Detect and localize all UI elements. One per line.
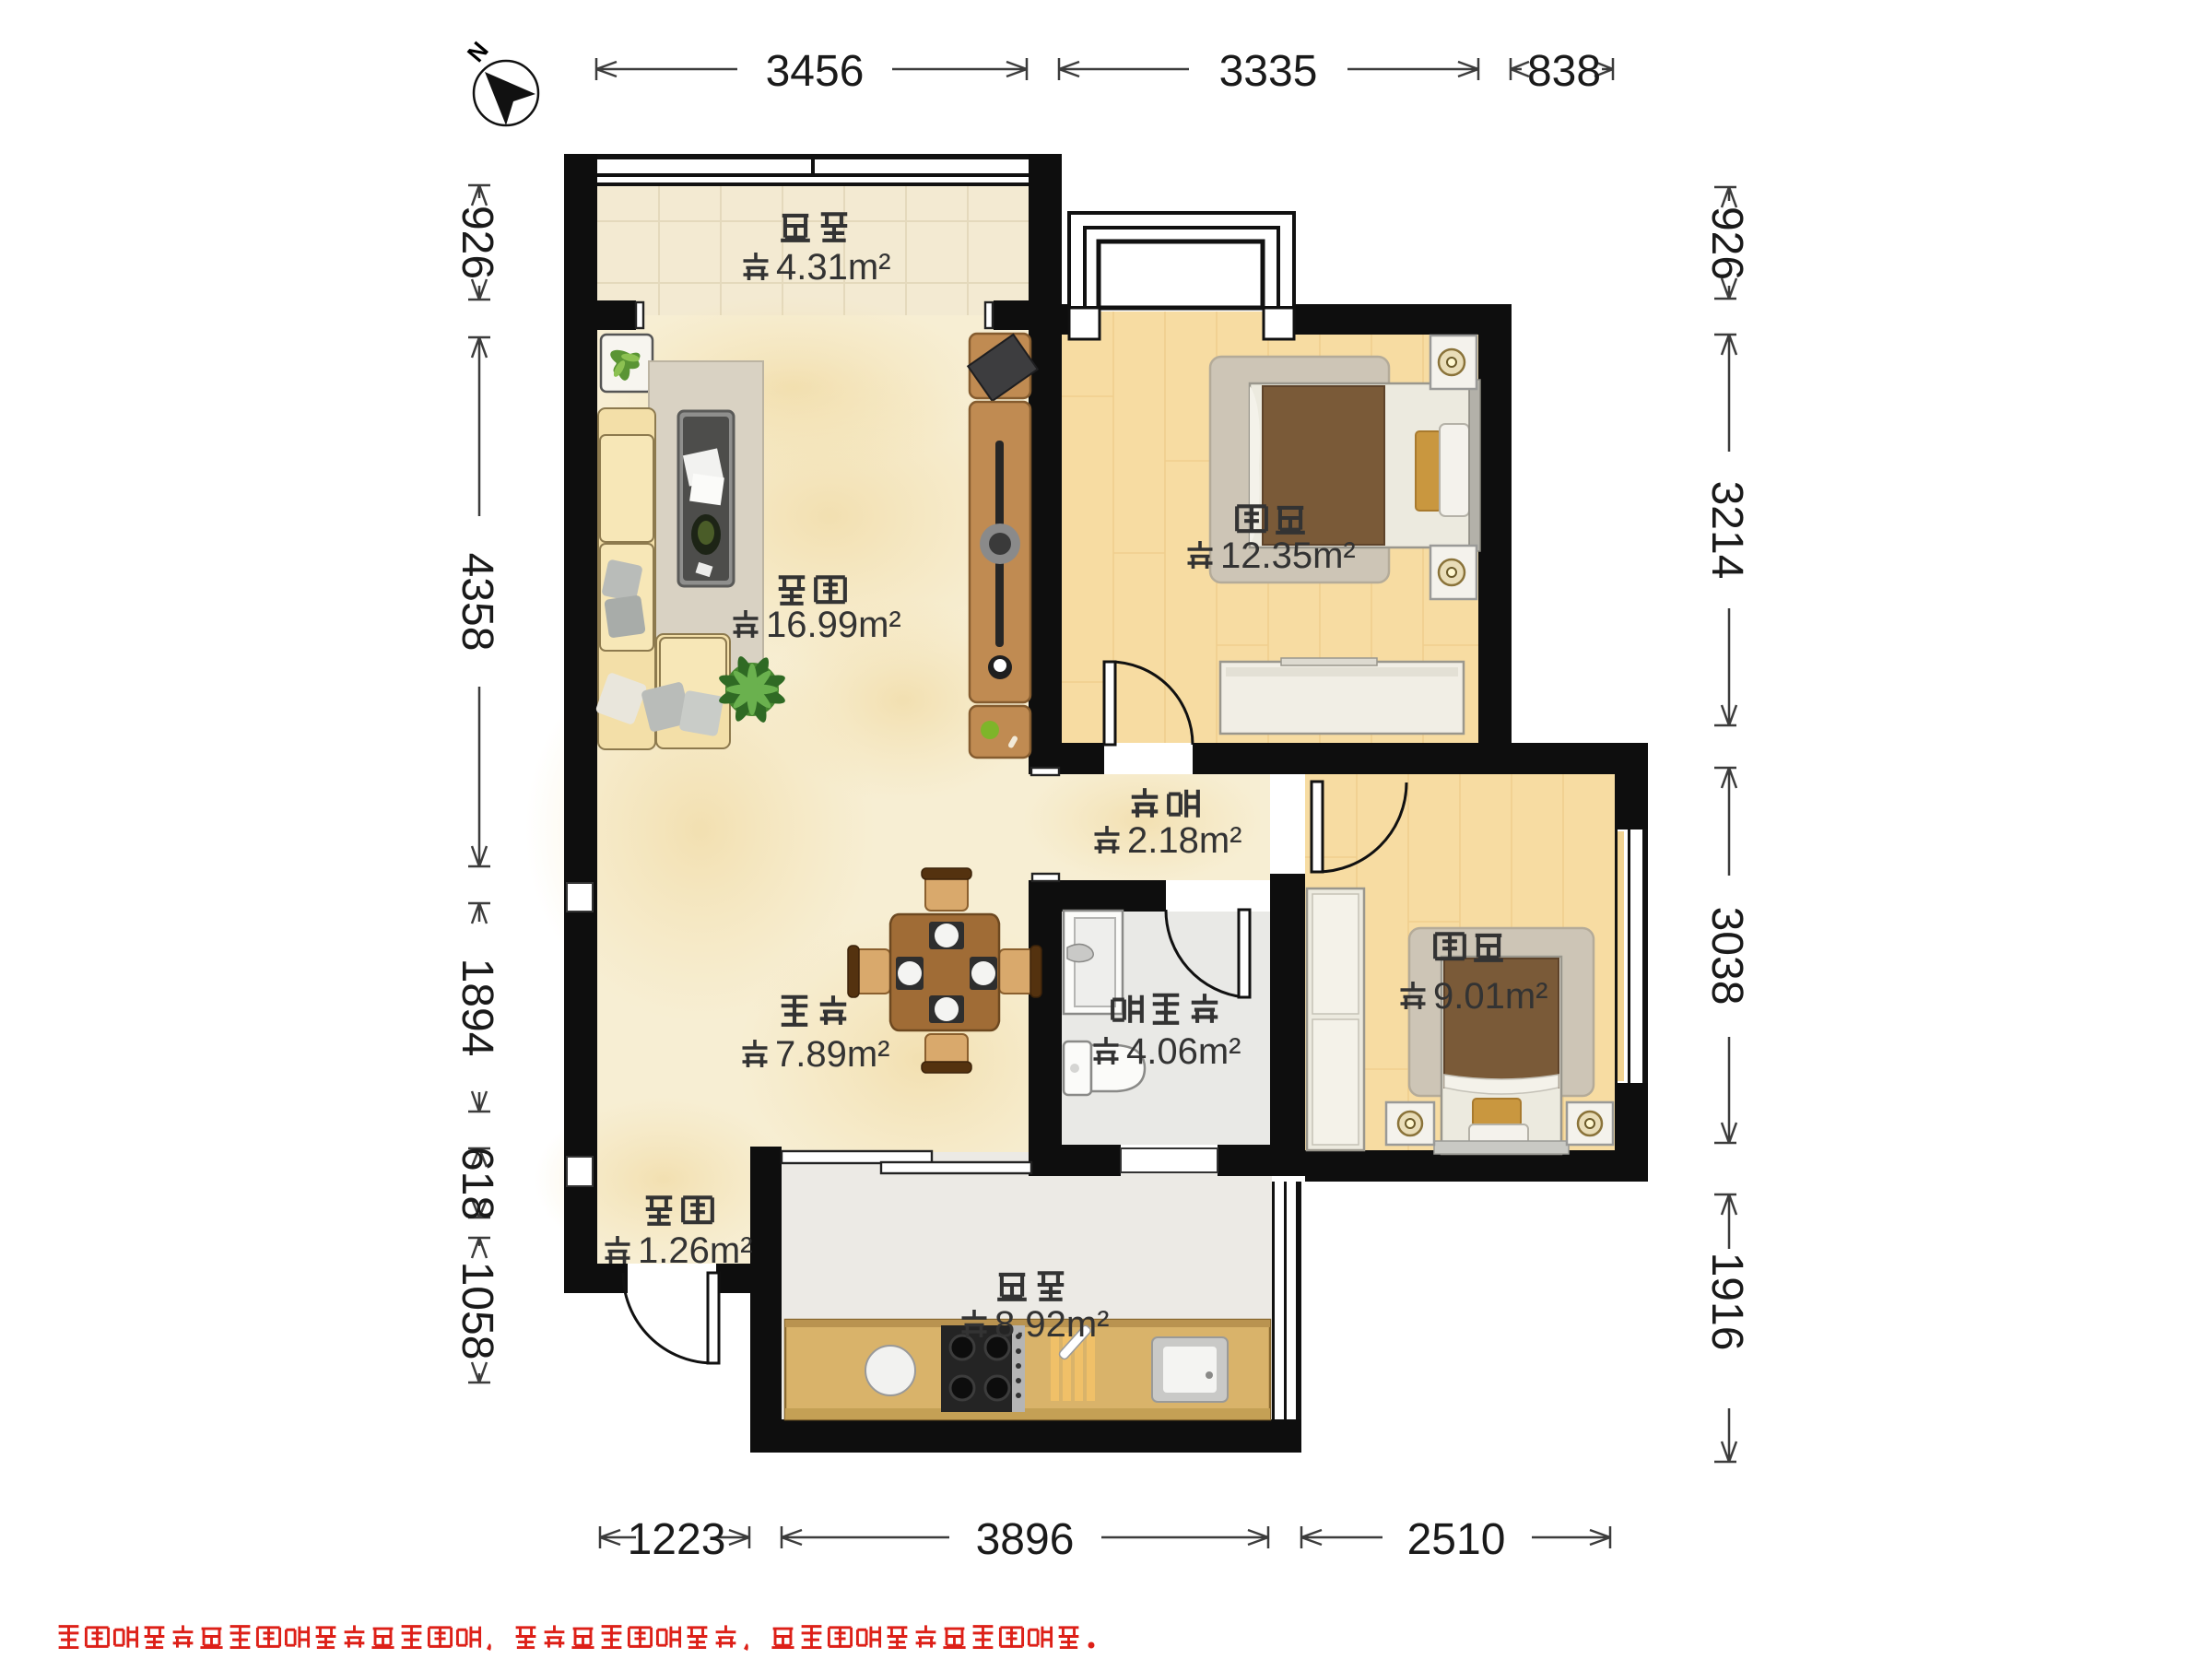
- svg-text:926: 926: [1702, 206, 1751, 280]
- svg-text:926: 926: [453, 206, 501, 279]
- svg-text:3456: 3456: [766, 47, 865, 96]
- svg-text:1223: 1223: [628, 1515, 726, 1564]
- svg-text:1894: 1894: [453, 959, 501, 1057]
- svg-text:2510: 2510: [1407, 1515, 1506, 1564]
- svg-text:1058: 1058: [453, 1262, 501, 1360]
- svg-text:16.99m²: 16.99m²: [766, 605, 901, 645]
- svg-text:838: 838: [1527, 47, 1601, 96]
- svg-text:9.01m²: 9.01m²: [1433, 976, 1548, 1017]
- svg-text:4.06m²: 4.06m²: [1126, 1031, 1241, 1072]
- svg-text:4358: 4358: [453, 553, 501, 652]
- svg-text:3335: 3335: [1219, 47, 1318, 96]
- svg-text:N: N: [462, 36, 494, 67]
- svg-text:3214: 3214: [1702, 481, 1751, 580]
- svg-text:1.26m²: 1.26m²: [638, 1230, 753, 1271]
- svg-text:7.89m²: 7.89m²: [775, 1034, 890, 1075]
- svg-text:4.31m²: 4.31m²: [776, 247, 891, 288]
- svg-text:618: 618: [453, 1147, 501, 1220]
- svg-text:8.92m²: 8.92m²: [994, 1304, 1110, 1345]
- svg-text:1916: 1916: [1702, 1253, 1751, 1351]
- svg-text:2.18m²: 2.18m²: [1127, 820, 1242, 861]
- svg-text:3896: 3896: [976, 1515, 1075, 1564]
- svg-text:3038: 3038: [1702, 907, 1751, 1006]
- svg-text:12.35m²: 12.35m²: [1220, 535, 1356, 576]
